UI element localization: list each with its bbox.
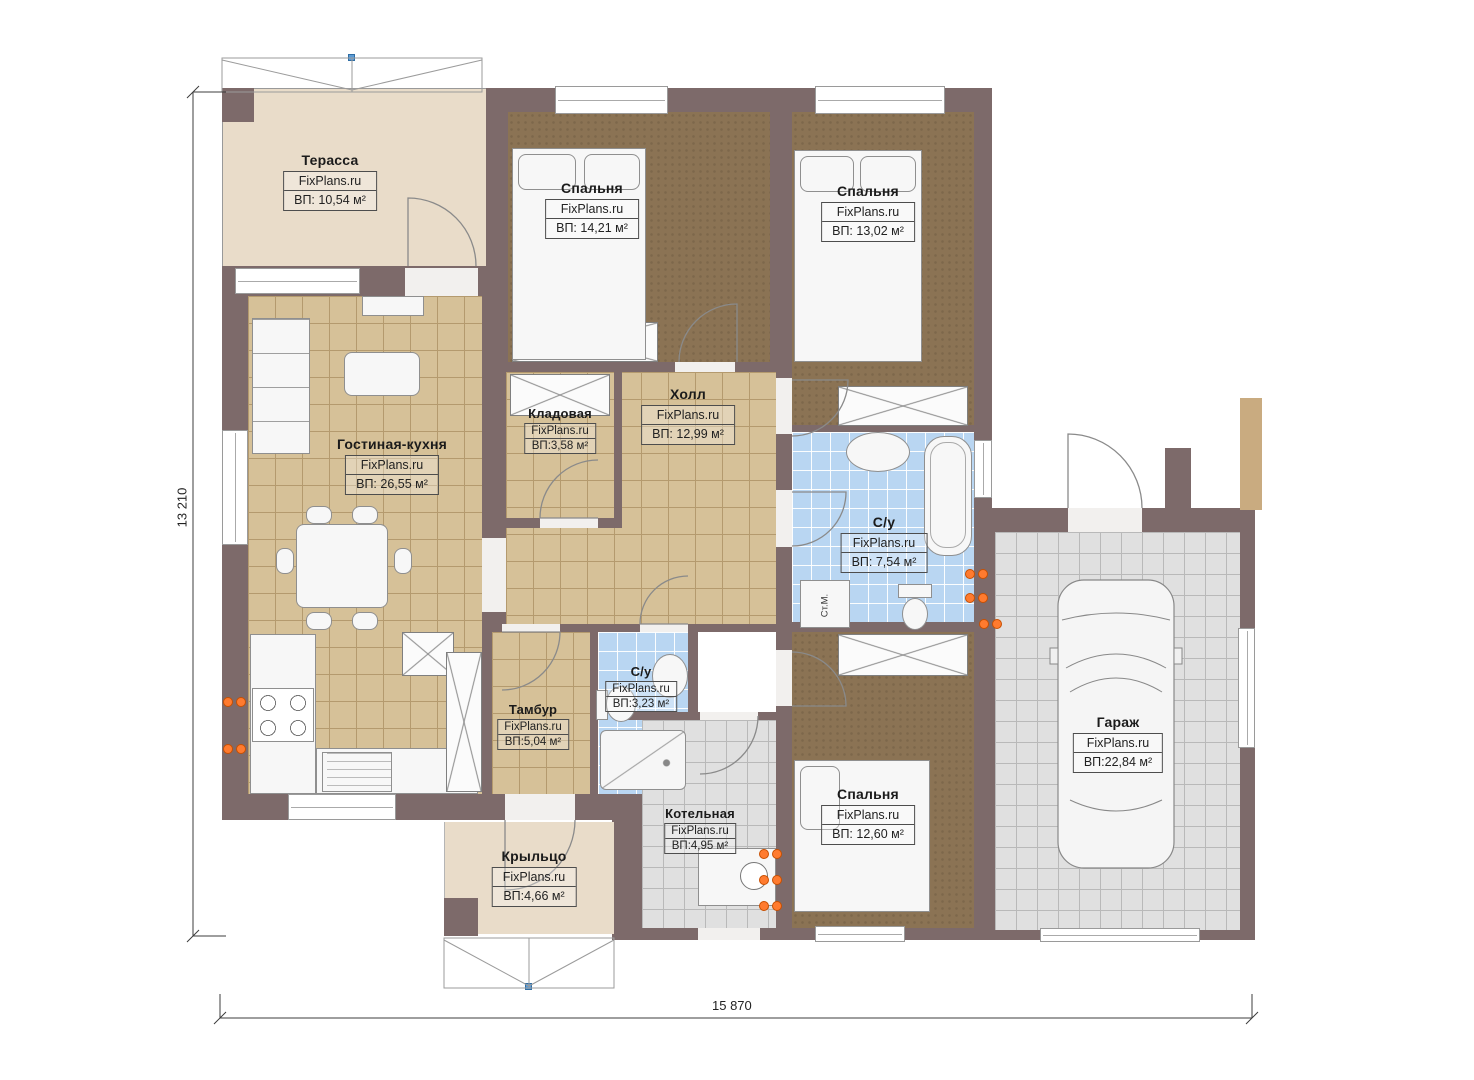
room-name: Терасса — [283, 152, 377, 168]
bath1-sink — [846, 432, 910, 472]
walkway-pier — [1165, 448, 1191, 510]
radiator-icon — [222, 696, 246, 707]
room-info-box: FixPlans.ru ВП:4,66 м² — [492, 867, 577, 907]
door-gap-bedroom1 — [675, 362, 735, 372]
room-info-box: FixPlans.ru ВП:5,04 м² — [497, 719, 569, 750]
radiator-icon — [978, 618, 1002, 629]
chair — [306, 612, 332, 630]
room-label-bedroom1: Спальня FixPlans.ru ВП: 14,21 м² — [545, 180, 639, 239]
kitchen-sink — [322, 752, 392, 792]
brand-watermark: FixPlans.ru — [822, 203, 914, 222]
chair — [276, 548, 294, 574]
tv-cabinet — [362, 296, 424, 316]
door-gap-boiler-ext — [698, 928, 760, 940]
room-label-porch: Крыльцо FixPlans.ru ВП:4,66 м² — [492, 848, 577, 907]
roof-apex-marker — [525, 983, 532, 990]
living-west-window — [222, 430, 248, 545]
coffee-table — [344, 352, 420, 396]
door-gap-storage — [540, 518, 598, 528]
brand-watermark: FixPlans.ru — [665, 824, 735, 839]
opening-boiler — [700, 712, 758, 720]
porch-pier — [444, 898, 478, 936]
room-label-bedroom3: Спальня FixPlans.ru ВП: 12,60 м² — [821, 786, 915, 845]
room-area: ВП: 13,02 м² — [822, 222, 914, 241]
door-gap-bedroom2 — [776, 378, 792, 434]
dining-table — [296, 524, 388, 608]
room-name: Котельная — [664, 806, 736, 821]
porch-roof-outline — [444, 938, 614, 988]
room-info-box: FixPlans.ru ВП: 13,02 м² — [821, 202, 915, 242]
room-area: ВП:5,04 м² — [498, 735, 568, 749]
room-name: Спальня — [821, 786, 915, 802]
room-info-box: FixPlans.ru ВП: 12,99 м² — [641, 405, 735, 445]
garage-walkway — [995, 445, 1240, 508]
room-name: С/у — [841, 514, 928, 530]
radiator-icon — [758, 900, 782, 911]
room-name: Крыльцо — [492, 848, 577, 864]
dimension-line-left — [187, 86, 226, 942]
room-name: Гостиная-кухня — [337, 436, 447, 452]
room-name: С/у — [605, 664, 677, 679]
room-info-box: FixPlans.ru ВП:3,58 м² — [524, 423, 596, 454]
boiler-corridor — [698, 632, 776, 712]
room-info-box: FixPlans.ru ВП: 10,54 м² — [283, 171, 377, 211]
room-label-storage: Кладовая FixPlans.ru ВП:3,58 м² — [524, 406, 596, 454]
room-area: ВП:3,23 м² — [606, 697, 676, 711]
garage-gate — [1040, 928, 1200, 942]
room-area: ВП: 10,54 м² — [284, 191, 376, 210]
floor-plan: Ст.М. — [0, 0, 1474, 1080]
east-window — [974, 440, 992, 498]
site-strip — [1240, 398, 1262, 510]
room-info-box: FixPlans.ru ВП: 12,60 м² — [821, 805, 915, 845]
dimension-height: 13 210 — [174, 488, 189, 528]
sofa — [252, 318, 310, 454]
terrace-roof-outline — [222, 58, 482, 92]
door-gap-tambour — [502, 624, 560, 632]
bath1-toilet-tank — [898, 584, 932, 598]
room-name: Спальня — [821, 183, 915, 199]
chair — [352, 612, 378, 630]
room-label-bath2: С/у FixPlans.ru ВП:3,23 м² — [605, 664, 677, 712]
room-name: Тамбур — [497, 702, 569, 717]
room-label-tambour: Тамбур FixPlans.ru ВП:5,04 м² — [497, 702, 569, 750]
brand-watermark: FixPlans.ru — [642, 406, 734, 425]
room-area: ВП:4,95 м² — [665, 839, 735, 853]
room-name: Холл — [641, 386, 735, 402]
room-name: Кладовая — [524, 406, 596, 421]
door-gap-bath2 — [640, 624, 688, 632]
wardrobe-living — [446, 652, 482, 792]
dimension-width: 15 870 — [712, 998, 752, 1013]
brand-watermark: FixPlans.ru — [842, 534, 927, 553]
living-south-window — [288, 794, 396, 820]
door-gap-bedroom3 — [776, 650, 792, 706]
bathtub-inner — [930, 442, 966, 548]
room-name: Спальня — [545, 180, 639, 196]
room-label-terrace: Терасса FixPlans.ru ВП: 10,54 м² — [283, 152, 377, 211]
brand-watermark: FixPlans.ru — [606, 682, 676, 697]
brand-watermark: FixPlans.ru — [498, 720, 568, 735]
radiator-icon — [758, 874, 782, 885]
room-label-living: Гостиная-кухня FixPlans.ru ВП: 26,55 м² — [337, 436, 447, 495]
room-label-hall: Холл FixPlans.ru ВП: 12,99 м² — [641, 386, 735, 445]
room-info-box: FixPlans.ru ВП:22,84 м² — [1073, 733, 1163, 773]
room-area: ВП:22,84 м² — [1074, 753, 1162, 772]
room-area: ВП: 14,21 м² — [546, 219, 638, 238]
wardrobe-bedroom3 — [838, 634, 968, 676]
shower-tray — [600, 730, 686, 790]
room-label-garage: Гараж FixPlans.ru ВП:22,84 м² — [1073, 714, 1163, 773]
room-area: ВП: 12,99 м² — [642, 425, 734, 444]
roof-apex-marker — [348, 54, 355, 61]
room-area: ВП:3,58 м² — [525, 439, 595, 453]
door-gap-garage — [1068, 508, 1142, 532]
room-label-bath1: С/у FixPlans.ru ВП: 7,54 м² — [841, 514, 928, 573]
room-info-box: FixPlans.ru ВП:4,95 м² — [664, 823, 736, 854]
brand-watermark: FixPlans.ru — [525, 424, 595, 439]
room-area: ВП: 12,60 м² — [822, 825, 914, 844]
garage-east-window — [1238, 628, 1255, 748]
radiator-icon — [964, 568, 988, 579]
door-gap-bath1 — [776, 490, 792, 547]
washing-machine-label: Ст.М. — [820, 582, 831, 630]
wardrobe-bedroom2 — [838, 386, 968, 426]
radiator-icon — [758, 848, 782, 859]
brand-watermark: FixPlans.ru — [284, 172, 376, 191]
radiator-icon — [222, 743, 246, 754]
room-area: ВП:4,66 м² — [493, 887, 576, 906]
opening-living-hall — [482, 538, 506, 612]
bedroom1-window — [555, 86, 668, 114]
chair — [352, 506, 378, 524]
stove — [252, 688, 314, 742]
room-info-box: FixPlans.ru ВП:3,23 м² — [605, 681, 677, 712]
brand-watermark: FixPlans.ru — [346, 456, 438, 475]
door-gap-terrace — [405, 268, 478, 296]
terrace-pier — [222, 88, 254, 122]
room-label-boiler: Котельная FixPlans.ru ВП:4,95 м² — [664, 806, 736, 854]
brand-watermark: FixPlans.ru — [822, 806, 914, 825]
room-label-bedroom2: Спальня FixPlans.ru ВП: 13,02 м² — [821, 183, 915, 242]
room-area: ВП: 7,54 м² — [842, 553, 927, 572]
room-info-box: FixPlans.ru ВП: 26,55 м² — [345, 455, 439, 495]
radiator-icon — [964, 592, 988, 603]
chair — [394, 548, 412, 574]
brand-watermark: FixPlans.ru — [1074, 734, 1162, 753]
bedroom3-window — [815, 926, 905, 942]
storage-right-wall — [614, 372, 622, 524]
door-gap-entrance — [505, 794, 575, 820]
room-area: ВП: 26,55 м² — [346, 475, 438, 494]
bath1-toilet-bowl — [902, 598, 928, 630]
brand-watermark: FixPlans.ru — [493, 868, 576, 887]
room-info-box: FixPlans.ru ВП: 14,21 м² — [545, 199, 639, 239]
brand-watermark: FixPlans.ru — [546, 200, 638, 219]
room-name: Гараж — [1073, 714, 1163, 730]
terrace-window — [235, 268, 360, 294]
chair — [306, 506, 332, 524]
room-info-box: FixPlans.ru ВП: 7,54 м² — [841, 533, 928, 573]
bedroom2-window — [815, 86, 945, 114]
